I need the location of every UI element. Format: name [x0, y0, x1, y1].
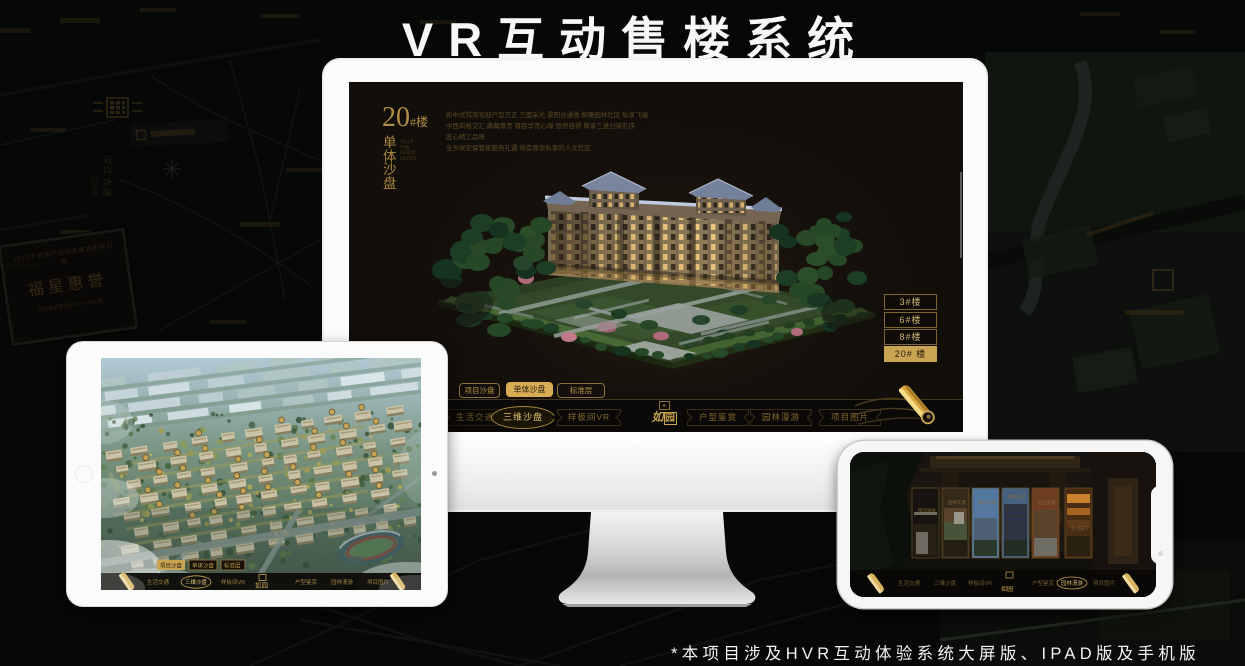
svg-text:生活交通: 生活交通 — [898, 579, 921, 587]
svg-text:项目沙盘: 项目沙盘 — [160, 562, 183, 570]
svg-text:园林漫游: 园林漫游 — [331, 578, 354, 586]
svg-text:样板间VR: 样板间VR — [968, 579, 992, 587]
svg-text:如园: 如园 — [255, 581, 268, 590]
svg-text:生活美学: 生活美学 — [1071, 525, 1089, 532]
svg-text:精装样板: 精装样板 — [918, 507, 936, 514]
svg-text:汉江大道: 汉江大道 — [102, 155, 113, 199]
svg-text:社区配套: 社区配套 — [1038, 499, 1056, 506]
svg-text:样板间VR: 样板间VR — [221, 578, 245, 586]
svg-text:三维沙盘: 三维沙盘 — [185, 578, 208, 586]
svg-text:园林实景: 园林实景 — [948, 499, 966, 506]
svg-text:楼栋鉴赏: 楼栋鉴赏 — [1008, 493, 1026, 500]
svg-text:标准层: 标准层 — [224, 562, 241, 570]
svg-text:如园: 如园 — [1001, 585, 1013, 593]
svg-text:户型鉴赏: 户型鉴赏 — [295, 578, 318, 586]
svg-text:单体沙盘: 单体沙盘 — [192, 562, 215, 570]
svg-text:三维沙盘: 三维沙盘 — [934, 579, 957, 587]
svg-text:建筑外观: 建筑外观 — [978, 499, 996, 506]
svg-text:生活交通: 生活交通 — [147, 578, 170, 586]
svg-text:滨河路: 滨河路 — [90, 175, 99, 196]
svg-text:园林漫游: 园林漫游 — [1061, 579, 1084, 587]
svg-text:户型鉴赏: 户型鉴赏 — [1032, 579, 1055, 587]
svg-text:项目图片: 项目图片 — [1093, 579, 1115, 587]
